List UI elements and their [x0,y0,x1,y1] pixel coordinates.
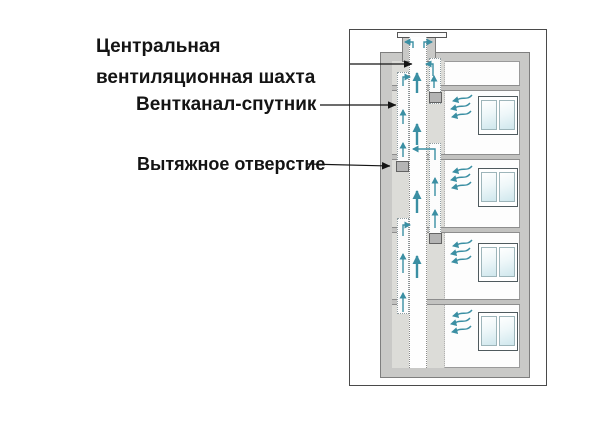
label-satellite-duct: Вентканал-спутник [136,94,316,116]
window-pane [481,247,497,277]
label-central-shaft: Центральная вентиляционная шахта [96,31,315,93]
window-floor-1 [478,96,518,135]
window-pane [499,316,515,346]
satellite-duct-left-lower [397,218,409,314]
satellite-duct-left-upper [397,72,409,172]
central-ventilation-shaft [409,37,427,368]
window-floor-4 [478,312,518,351]
window-floor-2 [478,168,518,207]
window-pane [499,247,515,277]
window-pane [499,172,515,202]
satellite-duct-right-lower [429,143,441,244]
exhaust-opening [429,233,442,244]
exhaust-opening [429,92,442,103]
label-central-shaft-line2: вентиляционная шахта [96,62,315,93]
window-pane [499,100,515,130]
ventilation-diagram: Центральная вентиляционная шахта Венткан… [0,0,600,430]
exhaust-opening [396,161,409,172]
window-pane [481,100,497,130]
label-central-shaft-line1: Центральная [96,31,315,62]
window-pane [481,172,497,202]
window-pane [481,316,497,346]
label-exhaust-opening: Вытяжное отверстие [137,153,325,175]
window-floor-3 [478,243,518,282]
